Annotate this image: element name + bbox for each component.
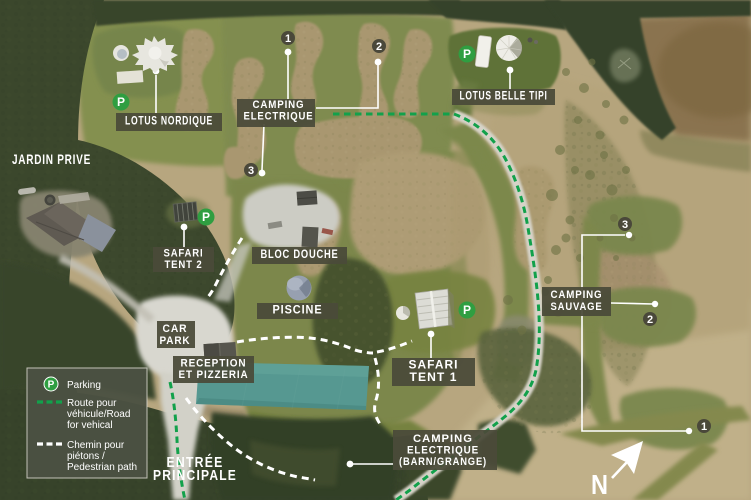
svg-text:SAFARI: SAFARI [164,247,204,259]
svg-text:CAMPING: CAMPING [551,289,603,301]
svg-text:1: 1 [285,33,291,45]
svg-text:3: 3 [622,219,628,231]
svg-text:ET PIZZERIA: ET PIZZERIA [179,369,249,381]
svg-text:P: P [463,303,471,317]
svg-text:2: 2 [376,41,382,53]
svg-text:ELECTRIQUE: ELECTRIQUE [244,110,314,122]
svg-text:3: 3 [248,165,254,177]
svg-text:TENT 2: TENT 2 [165,259,203,271]
svg-text:Pedestrian path: Pedestrian path [67,462,137,473]
svg-text:LOTUS BELLE TIPI: LOTUS BELLE TIPI [460,89,548,103]
svg-text:(BARN/GRANGE): (BARN/GRANGE) [399,456,487,468]
svg-text:CAR: CAR [163,323,188,335]
svg-text:ELECTRIQUE: ELECTRIQUE [407,445,479,457]
svg-text:SAFARI: SAFARI [409,360,459,372]
svg-text:Parking: Parking [67,380,101,391]
svg-text:Route pour: Route pour [67,398,117,409]
svg-text:CAMPING: CAMPING [413,433,473,445]
svg-text:TENT 1: TENT 1 [410,372,458,384]
svg-text:for vehical: for vehical [67,420,113,431]
svg-text:PARK: PARK [160,335,191,347]
svg-text:véhicule/Road: véhicule/Road [67,409,130,420]
svg-text:LOTUS NORDIQUE: LOTUS NORDIQUE [125,114,213,128]
svg-text:P: P [48,380,55,391]
svg-text:2: 2 [647,314,653,326]
svg-text:PRINCIPALE: PRINCIPALE [153,467,237,484]
svg-text:SAUVAGE: SAUVAGE [551,301,603,313]
svg-text:BLOC DOUCHE: BLOC DOUCHE [261,247,339,261]
svg-text:Chemin pour: Chemin pour [67,440,125,451]
svg-text:P: P [202,210,210,224]
svg-text:N: N [591,469,608,500]
svg-text:1: 1 [701,421,707,433]
svg-text:RECEPTION: RECEPTION [181,357,247,369]
svg-text:CAMPING: CAMPING [253,99,305,111]
svg-text:PISCINE: PISCINE [273,303,323,317]
svg-text:piétons /: piétons / [67,451,105,462]
svg-text:P: P [463,47,471,61]
svg-text:P: P [117,95,125,109]
svg-text:JARDIN PRIVE: JARDIN PRIVE [12,151,91,167]
